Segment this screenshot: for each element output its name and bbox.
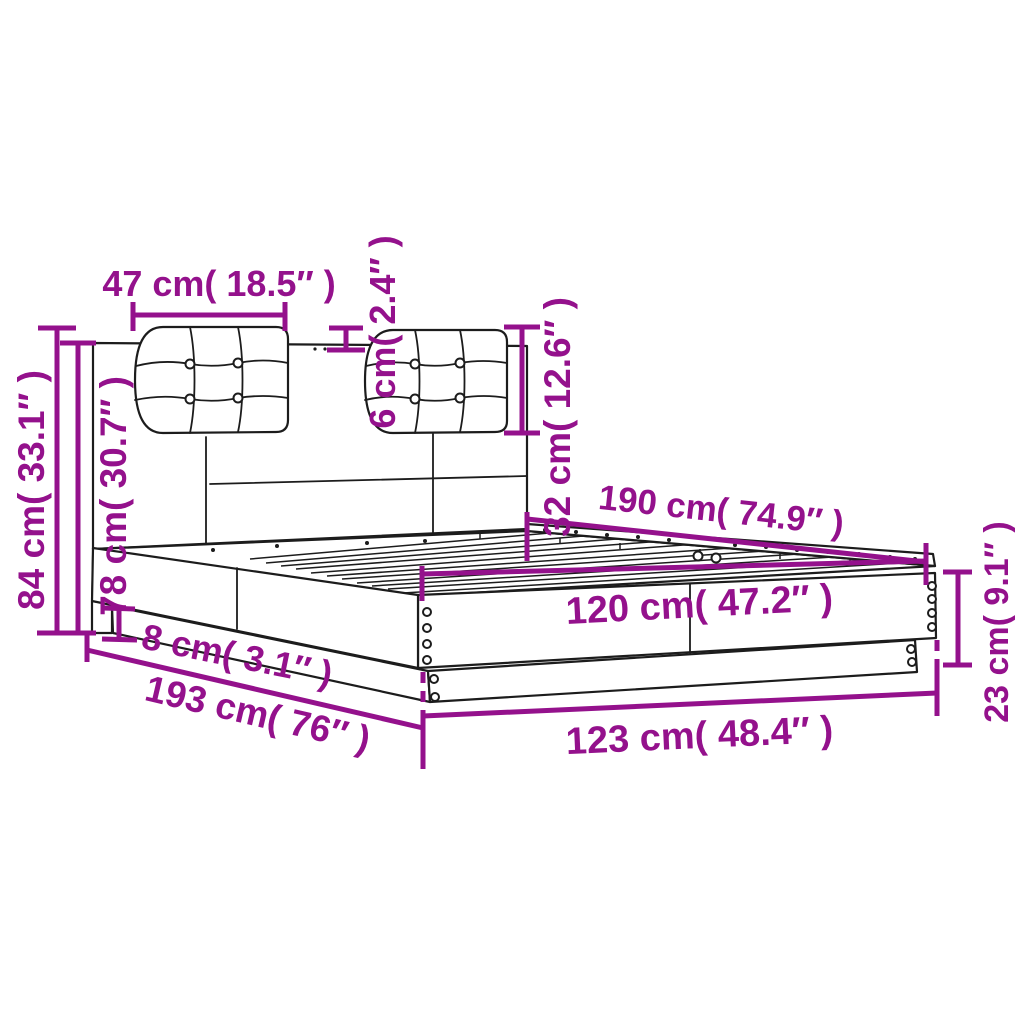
dim-total-height: 84 cm( 33.1″ ) [11,328,96,633]
dim-headboard-upper-height-label: 32 cm( 12.6″ ) [537,297,578,537]
dim-cushion-width-label: 47 cm( 18.5″ ) [102,263,335,304]
dim-headboard-height-label: 78 cm( 30.7″ ) [93,376,134,616]
left-headboard-cushion [135,327,288,433]
dim-frame-height: 23 cm( 9.1″ ) [943,521,1016,723]
ticks [60,343,96,633]
dim-outer-width-label: 123 cm( 48.4″ ) [565,709,834,763]
dim-headboard-height: 78 cm( 30.7″ ) [60,343,134,633]
dim-frame-height-label: 23 cm( 9.1″ ) [978,521,1016,723]
dim-total-height-label: 84 cm( 33.1″ ) [11,370,52,610]
dim-cushion-width: 47 cm( 18.5″ ) [102,263,335,331]
dim-cushion-thickness-label: 6 cm( 2.4″ ) [362,235,403,428]
dimension-diagram-page: 47 cm( 18.5″ ) 6 cm( 2.4″ ) 32 cm( 12.6″… [0,0,1024,1024]
bed-dimension-diagram: 47 cm( 18.5″ ) 6 cm( 2.4″ ) 32 cm( 12.6″… [0,0,1024,1024]
ticks [943,572,972,665]
